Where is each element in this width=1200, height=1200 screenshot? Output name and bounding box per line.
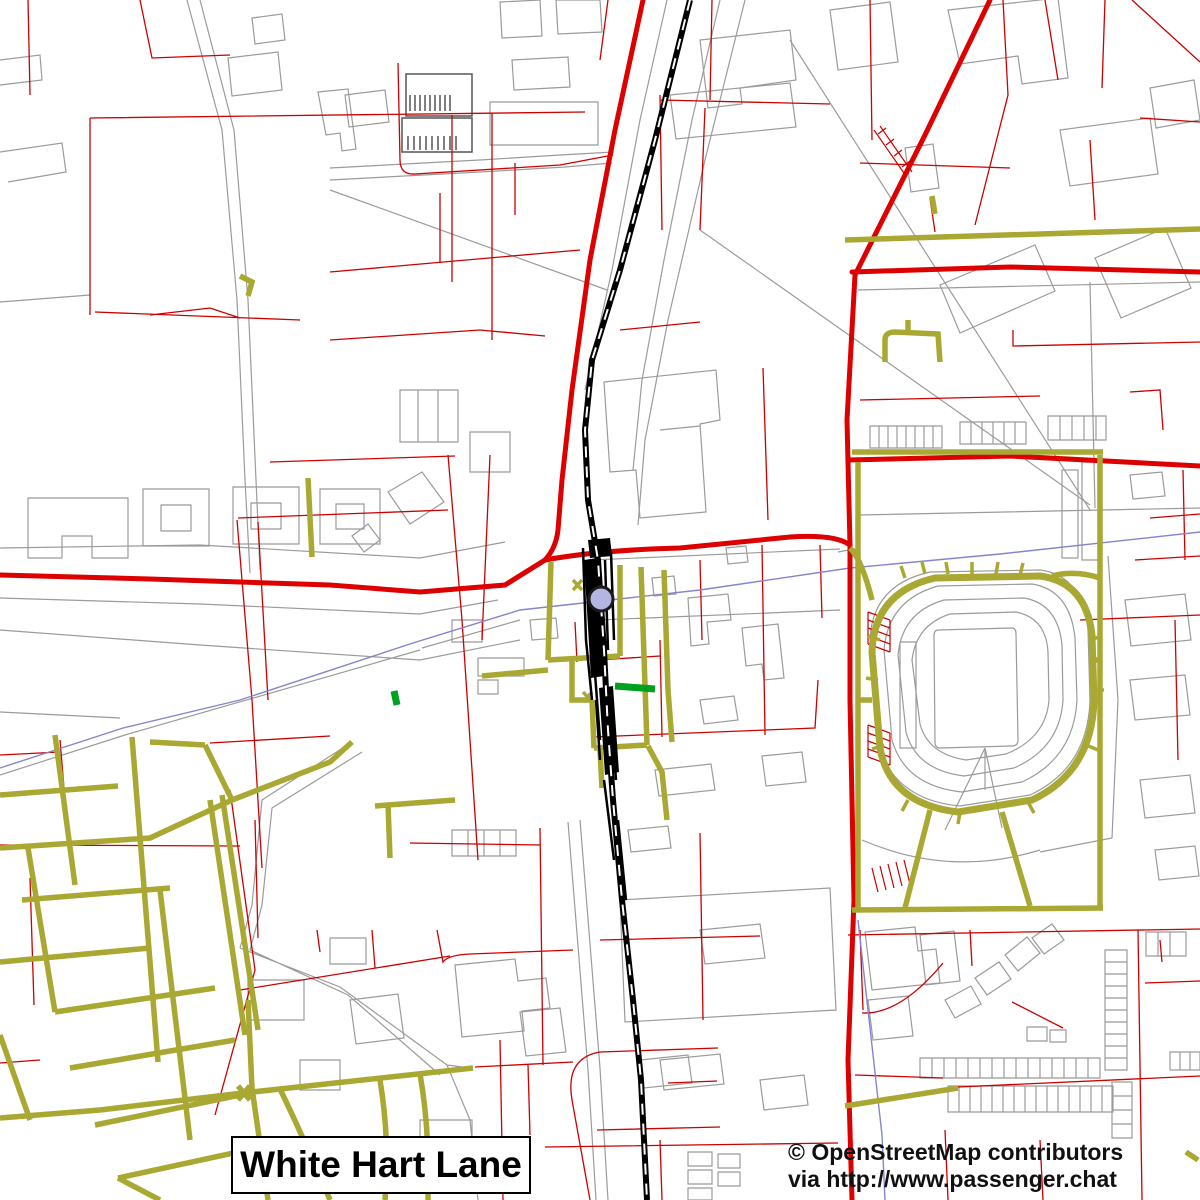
map-title-box: White Hart Lane xyxy=(231,1136,531,1194)
park-features xyxy=(394,686,655,705)
station-marker xyxy=(589,587,613,611)
map-page: White Hart Lane © OpenStreetMap contribu… xyxy=(0,0,1200,1200)
map-title: White Hart Lane xyxy=(240,1144,522,1186)
attribution-line2: via http://www.passenger.chat xyxy=(788,1166,1200,1193)
stadium-ring-path xyxy=(872,576,1094,812)
footpath-ticks xyxy=(573,562,1104,824)
attribution-line1: © OpenStreetMap contributors xyxy=(788,1139,1200,1166)
map-svg xyxy=(0,0,1200,1200)
attribution: © OpenStreetMap contributors via http://… xyxy=(788,1139,1200,1193)
